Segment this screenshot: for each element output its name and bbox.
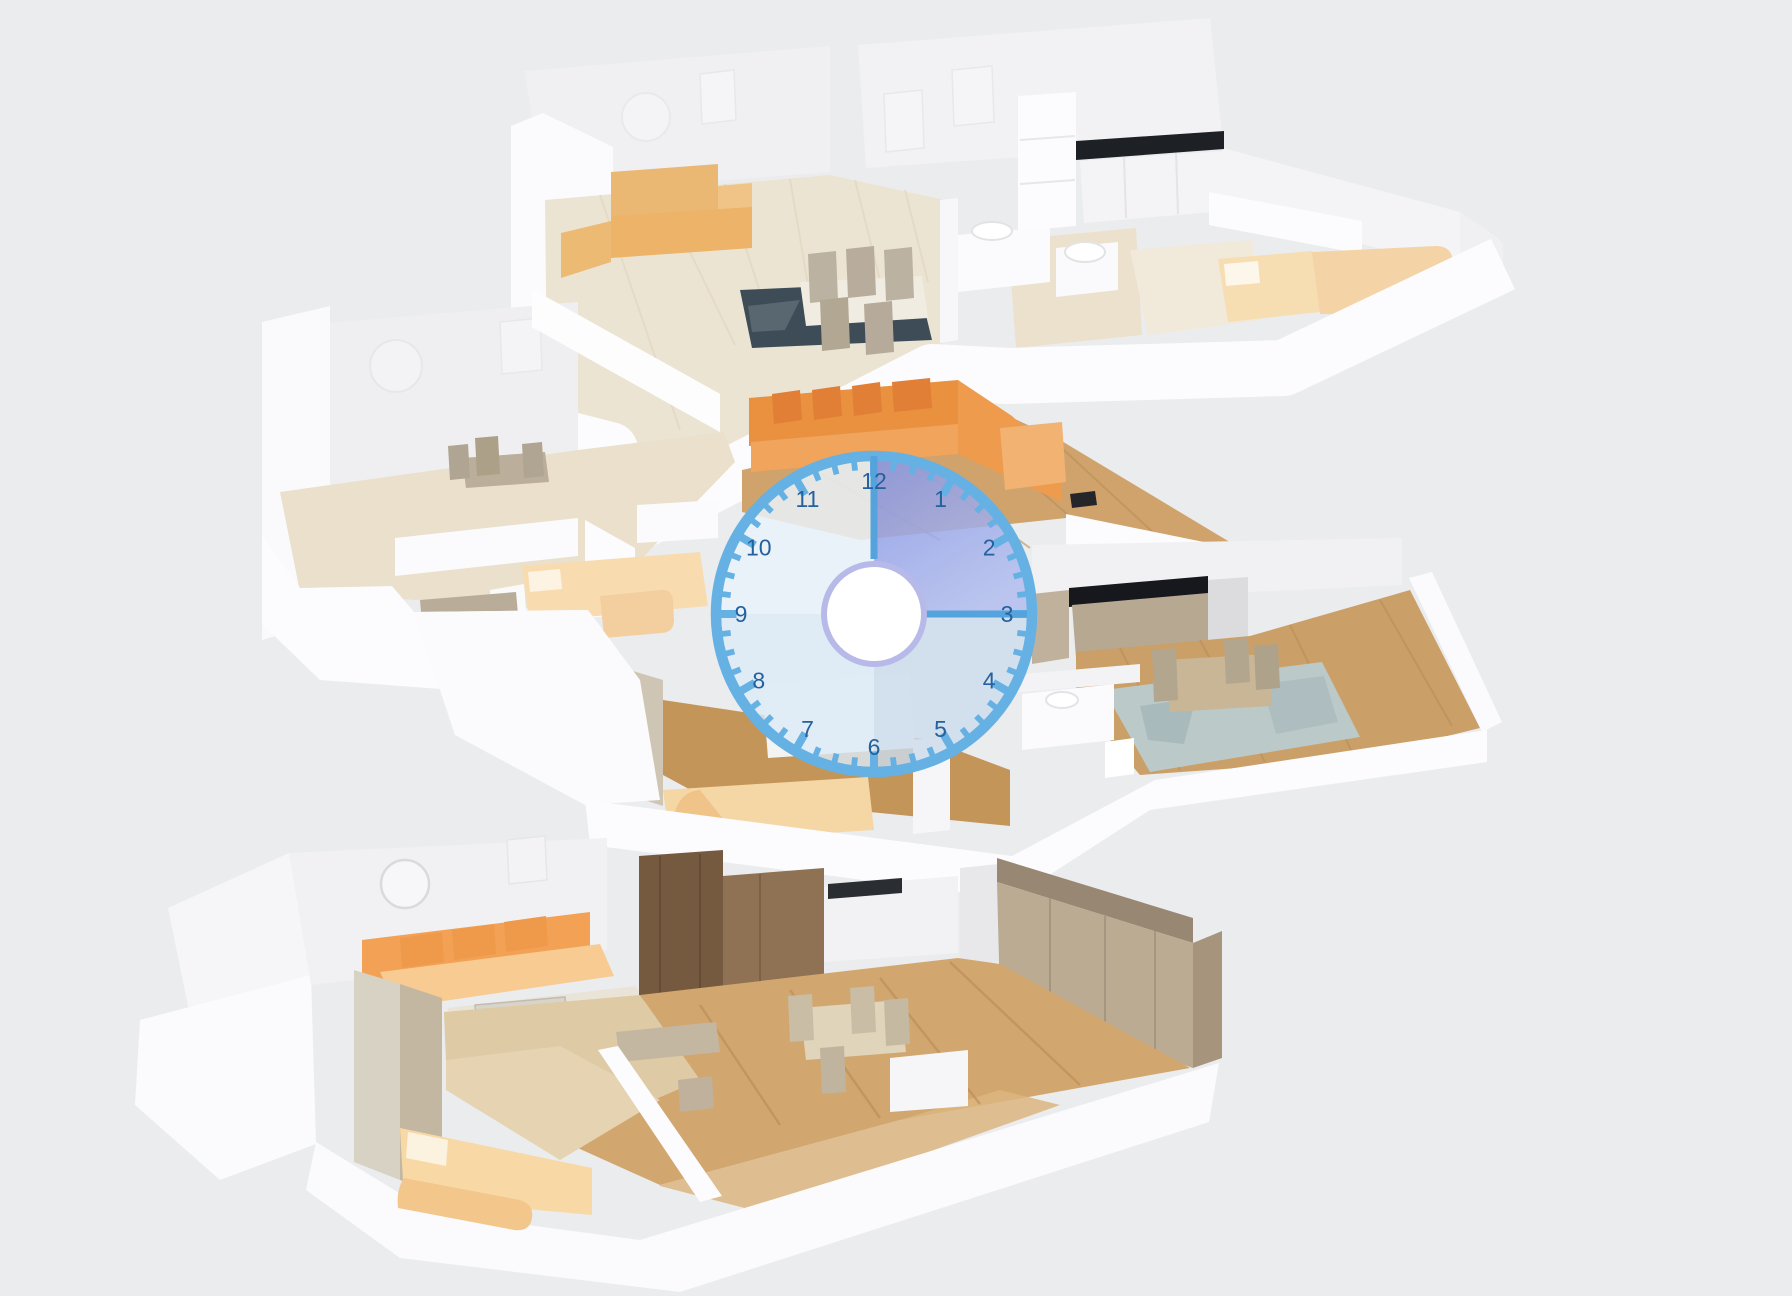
svg-text:5: 5 [934, 716, 947, 742]
svg-text:12: 12 [861, 468, 887, 494]
svg-text:7: 7 [801, 716, 814, 742]
svg-text:11: 11 [796, 486, 820, 512]
svg-text:3: 3 [1001, 601, 1014, 627]
svg-text:4: 4 [983, 668, 996, 694]
svg-text:2: 2 [983, 535, 996, 561]
svg-text:10: 10 [746, 535, 772, 561]
svg-text:8: 8 [752, 668, 765, 694]
svg-text:6: 6 [868, 734, 881, 760]
svg-text:9: 9 [735, 601, 748, 627]
svg-text:1: 1 [934, 486, 947, 512]
